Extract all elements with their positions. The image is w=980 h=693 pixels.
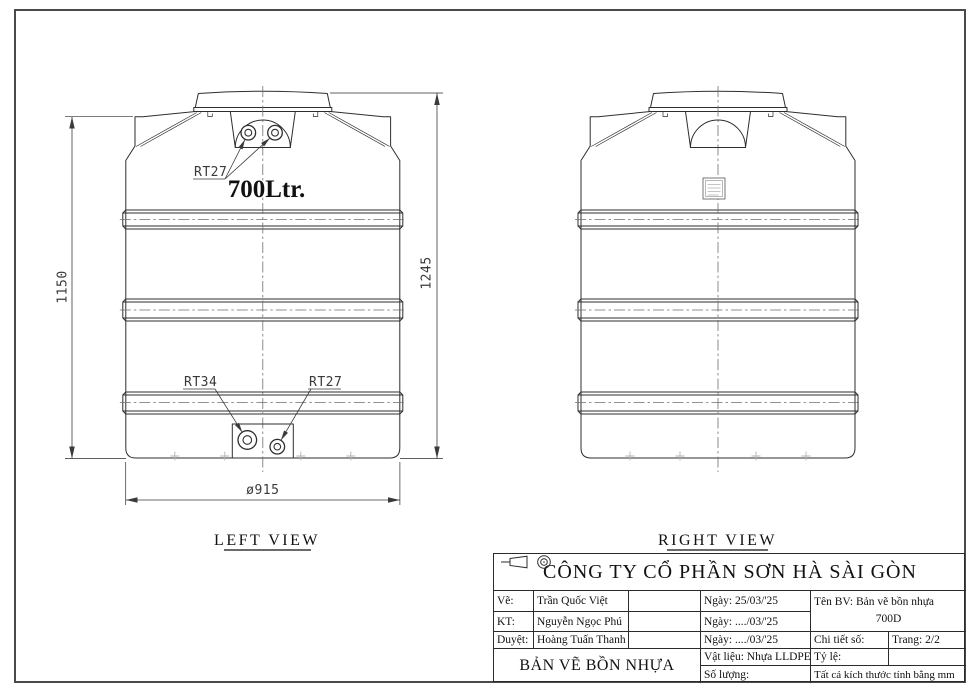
material: Vật liệu: Nhựa LLDPE [701,649,811,666]
bottom-right-fitting-label: RT27 [309,375,342,390]
dimension-diameter: ø915 [126,462,400,505]
top-fittings [241,125,282,140]
left-view: RT27 700Ltr. RT34 RT27 1150 1245 [56,86,444,550]
quantity-label: Số lượng: [701,666,811,683]
drawing-sheet: RT27 700Ltr. RT34 RT27 1150 1245 [0,0,980,693]
right-view: RIGHT VIEW [575,86,861,550]
body-height-value: 1150 [56,270,71,303]
overall-height-value: 1245 [420,256,435,289]
checked-by-label: KT: [494,612,534,632]
approved-by-name: Hoàng Tuấn Thanh [534,632,629,649]
dimension-overall-height: 1245 [330,93,443,459]
drawn-date: Ngày: 25/03/'25 [701,591,811,612]
company-name: CÔNG TY CỔ PHẦN SƠN HÀ SÀI GÒN [494,554,966,591]
diameter-value: ø915 [246,483,279,498]
sheet-title: BẢN VẼ BỒN NHỰA [494,649,701,683]
checked-date: Ngày: ..../03/'25 [701,612,811,632]
units-note: Tất cả kích thước tính bằng mm [811,666,966,683]
drawn-by-name: Trần Quốc Việt [534,591,629,612]
capacity-label: 700Ltr. [228,176,306,203]
approved-date: Ngày: ..../03/'25 [701,632,811,649]
bottom-left-fitting-label: RT34 [184,375,217,390]
scale-label: Tỷ lệ: [811,649,889,666]
checked-by-name: Nguyễn Ngọc Phú [534,612,629,632]
empty-cell [629,632,701,649]
drawing-name: Tên BV: Bản vẽ bồn nhựa [814,596,963,609]
drawing-code: 700D [814,613,963,626]
page-number: Trang: 2/2 [889,632,966,649]
drawing-name-cell: Tên BV: Bản vẽ bồn nhựa 700D [811,591,966,632]
approved-by-label: Duyệt: [494,632,534,649]
right-view-title: RIGHT VIEW [658,532,777,549]
empty-cell [629,612,701,632]
detail-no-label: Chi tiết số: [811,632,889,649]
nameplate [703,178,725,199]
projection-symbol-cell [889,649,966,666]
title-block: CÔNG TY CỔ PHẦN SƠN HÀ SÀI GÒN Vẽ: Trần … [493,553,965,682]
left-view-title: LEFT VIEW [214,532,320,549]
drawn-by-label: Vẽ: [494,591,534,612]
empty-cell [629,591,701,612]
dimension-body-height: 1150 [56,117,134,459]
top-fitting-label: RT27 [194,165,227,180]
